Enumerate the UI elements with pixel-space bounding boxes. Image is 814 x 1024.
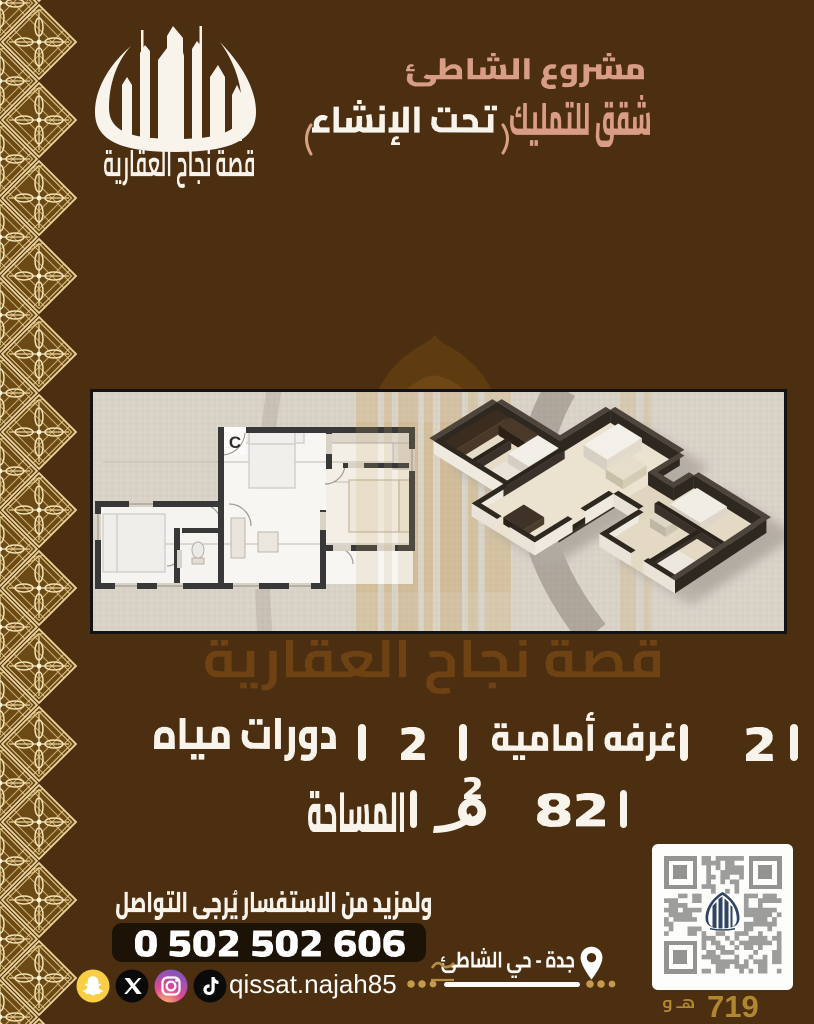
svg-text:C: C (229, 433, 241, 452)
